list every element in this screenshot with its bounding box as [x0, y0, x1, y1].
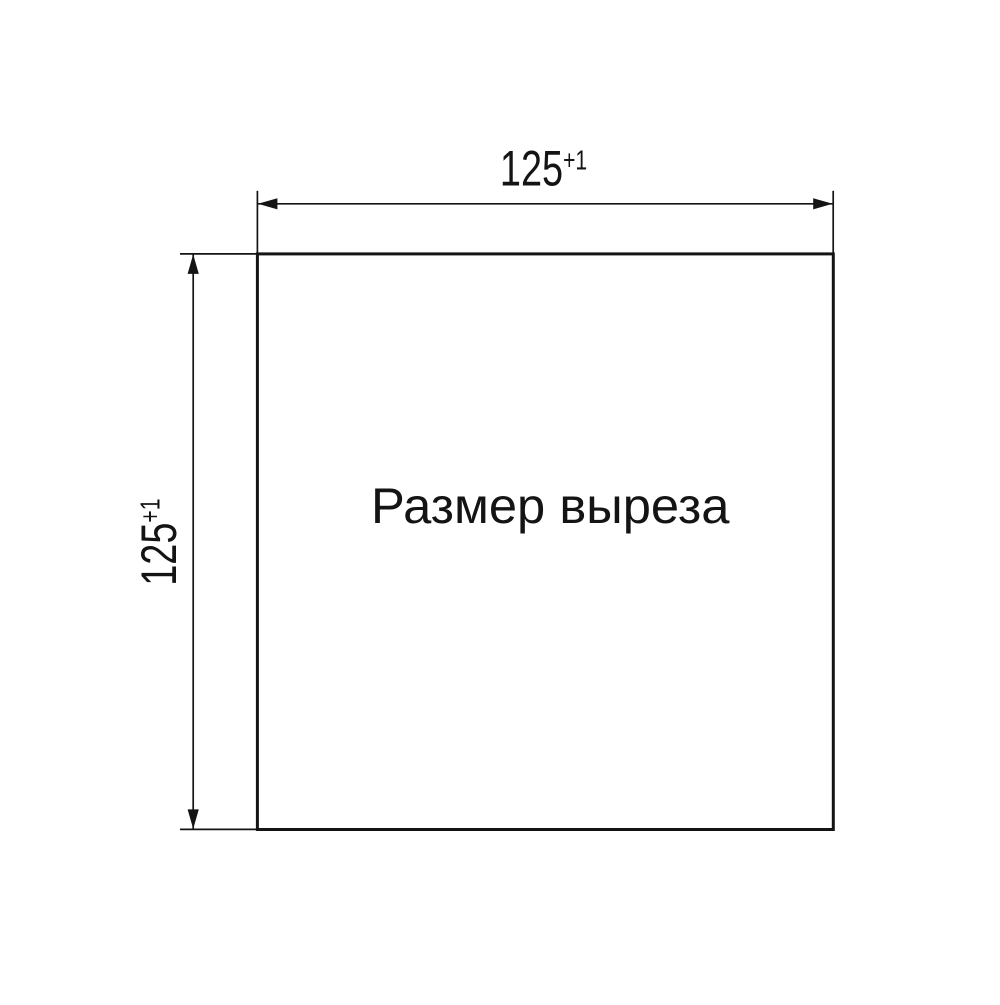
svg-text:Размер выреза: Размер выреза — [371, 477, 730, 534]
